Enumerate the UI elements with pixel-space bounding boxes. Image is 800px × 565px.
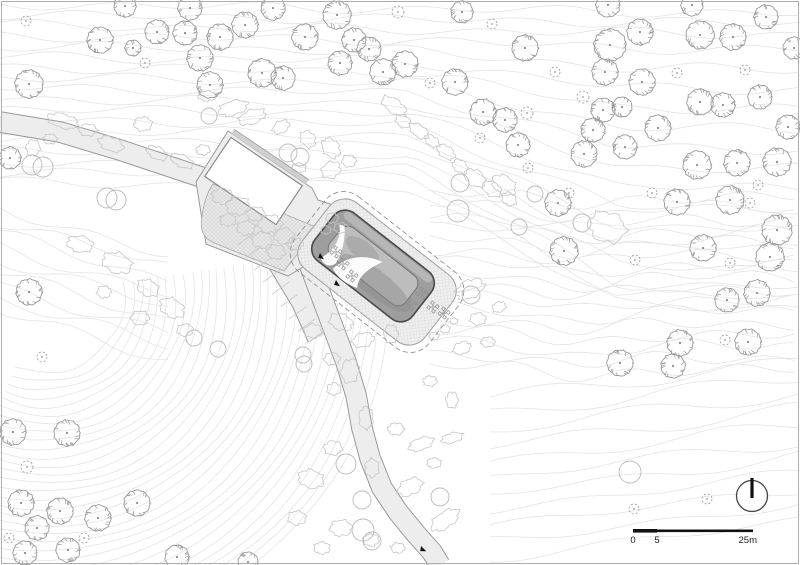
plain-tree-icon — [353, 491, 371, 509]
contour-line — [0, 302, 304, 551]
small-tree-icon — [425, 78, 435, 88]
contour-line — [15, 282, 125, 373]
contour-line — [0, 261, 277, 527]
tree-icon — [763, 148, 792, 177]
plain-tree-icon — [451, 174, 469, 192]
small-tree-icon — [521, 107, 533, 119]
plain-tree-icon — [279, 144, 297, 162]
contour-line — [490, 447, 798, 476]
bush-icon — [25, 140, 41, 157]
tree-icon — [776, 115, 800, 139]
tree-icon — [613, 135, 638, 160]
tree-icon — [493, 108, 517, 133]
bush-icon — [321, 137, 340, 160]
plain-tree-icon — [431, 488, 449, 506]
scale-label-5: 5 — [651, 536, 663, 546]
tree-icon — [0, 147, 22, 170]
bush-icon — [423, 376, 438, 387]
bush-icon — [133, 116, 153, 132]
bush-icon — [196, 145, 211, 156]
small-tree-icon — [702, 494, 712, 504]
tree-icon — [687, 89, 714, 115]
small-tree-icon — [475, 133, 485, 143]
tree-icon — [629, 69, 656, 96]
contour-line — [0, 242, 168, 297]
tree-icon — [596, 0, 621, 17]
bush-icon — [450, 318, 459, 325]
bush-icon — [329, 519, 353, 537]
small-tree-icon — [577, 91, 589, 103]
tree-icon — [627, 19, 654, 46]
tree-icon — [748, 85, 773, 109]
bush-icon — [427, 457, 442, 468]
bush-icon — [387, 423, 405, 436]
tree-icon — [231, 12, 258, 39]
scale-bar — [633, 529, 753, 533]
bush-icon — [428, 332, 439, 340]
tree-icon — [571, 141, 597, 168]
bush-icon — [381, 95, 407, 117]
tree-icon — [8, 490, 35, 517]
tree-icon — [723, 149, 750, 176]
bush-icon — [452, 341, 471, 355]
tree-icon — [187, 45, 214, 71]
tree-icon — [506, 133, 530, 158]
contour-line — [0, 208, 168, 257]
tree-icon — [664, 189, 691, 216]
contour-line — [430, 213, 794, 227]
small-tree-icon — [21, 461, 33, 473]
tree-icon — [178, 0, 203, 21]
tree-icon — [25, 515, 49, 540]
site-plan-drawing — [0, 0, 800, 565]
tree-icon — [593, 29, 626, 62]
contour-line — [0, 117, 798, 214]
site-plan: 0 5 25m — [0, 0, 800, 565]
tree-icon — [13, 541, 37, 565]
tree-icon — [173, 21, 198, 45]
tree-icon — [581, 118, 605, 143]
bush-icon — [436, 144, 456, 161]
bush-icon — [67, 235, 94, 252]
contour-line — [0, 298, 168, 350]
small-tree-icon — [4, 533, 14, 543]
tree-icon — [512, 35, 539, 62]
bush-icon — [314, 541, 331, 555]
tree-icon — [686, 21, 714, 49]
tree-icon — [661, 354, 686, 379]
contour-line — [490, 394, 798, 432]
tree-icon — [197, 72, 224, 99]
bush-icon — [390, 543, 406, 553]
bush-icon — [492, 302, 507, 313]
tree-icon — [47, 498, 74, 524]
small-tree-icon — [37, 352, 47, 362]
tree-icon — [683, 151, 712, 180]
bush-icon — [320, 161, 341, 179]
small-tree-icon — [550, 67, 560, 77]
plain-tree-icon — [619, 461, 641, 483]
contour-line — [0, 2, 798, 18]
contour-line — [0, 275, 176, 424]
tree-icon — [14, 70, 43, 99]
contour-line — [0, 314, 168, 360]
bush-icon — [397, 477, 425, 497]
contour-line — [0, 304, 356, 565]
bush-icon — [431, 508, 460, 532]
contour-line — [0, 228, 168, 262]
tree-icon — [470, 99, 497, 126]
tree-icon — [291, 24, 318, 50]
plain-tree-icon — [336, 454, 356, 474]
tree-icon — [392, 51, 419, 78]
tree-icon — [720, 23, 747, 50]
bush-icon — [482, 181, 502, 198]
tree-icon — [681, 0, 703, 16]
bush-icon — [501, 192, 517, 207]
scale-label-25m: 25m — [723, 536, 757, 546]
small-tree-icon — [672, 68, 682, 78]
contour-line — [0, 270, 209, 459]
tree-icon — [16, 279, 43, 306]
tree-icon — [84, 504, 111, 531]
contour-line — [0, 272, 195, 440]
contour-line — [490, 358, 798, 397]
bush-icon — [445, 392, 459, 409]
contour-line — [8, 279, 143, 389]
plain-tree-icon — [447, 200, 469, 222]
bush-icon — [350, 333, 375, 348]
plain-tree-icon — [186, 330, 202, 346]
plain-tree-icon — [296, 356, 312, 372]
small-tree-icon — [720, 335, 730, 345]
bush-icon — [271, 120, 290, 135]
plain-tree-icon — [201, 108, 217, 124]
small-tree-icon — [745, 198, 755, 208]
tree-icon — [645, 115, 672, 142]
contour-line — [430, 325, 794, 345]
contour-line — [0, 263, 261, 510]
plain-tree-icon — [291, 148, 309, 166]
bush-icon — [469, 313, 487, 326]
tree-icon — [0, 419, 27, 446]
tree-icon — [441, 69, 468, 96]
tree-icon — [323, 1, 352, 30]
small-tree-icon — [629, 504, 639, 514]
tree-icon — [145, 20, 170, 44]
bush-icon — [137, 279, 159, 297]
contour-line — [430, 200, 794, 222]
tree-icon — [667, 329, 694, 356]
tree-icon — [711, 93, 736, 118]
contour-line — [0, 268, 226, 475]
contour-line — [0, 301, 287, 533]
tree-icon — [125, 40, 141, 56]
small-tree-icon — [487, 19, 497, 29]
tree-icon — [54, 420, 80, 447]
small-tree-icon — [740, 65, 750, 75]
bush-icon — [159, 297, 184, 319]
small-tree-icon — [753, 180, 763, 190]
tree-icon — [715, 186, 744, 215]
small-tree-icon — [725, 258, 735, 268]
tree-icon — [612, 97, 632, 117]
north-arrow-icon — [737, 478, 768, 512]
bush-icon — [327, 383, 341, 397]
tree-icon — [783, 37, 800, 59]
tree-icon — [735, 329, 762, 355]
contour-line — [0, 303, 338, 565]
plan-annotations — [633, 478, 768, 533]
tree-icon — [451, 1, 474, 23]
bush-icon — [300, 130, 316, 149]
tree-icon — [207, 24, 234, 50]
contour-line — [430, 290, 794, 309]
bush-icon — [102, 252, 134, 274]
tree-icon — [756, 243, 785, 271]
bush-icon — [440, 324, 451, 333]
scale-label-0: 0 — [627, 536, 639, 546]
tree-icon — [744, 279, 771, 306]
contour-line — [0, 11, 798, 28]
bush-icon — [408, 436, 435, 452]
bush-icon — [96, 286, 112, 299]
bush-icon — [440, 432, 464, 444]
plain-tree-icon — [511, 219, 527, 235]
contour-line — [0, 303, 319, 565]
